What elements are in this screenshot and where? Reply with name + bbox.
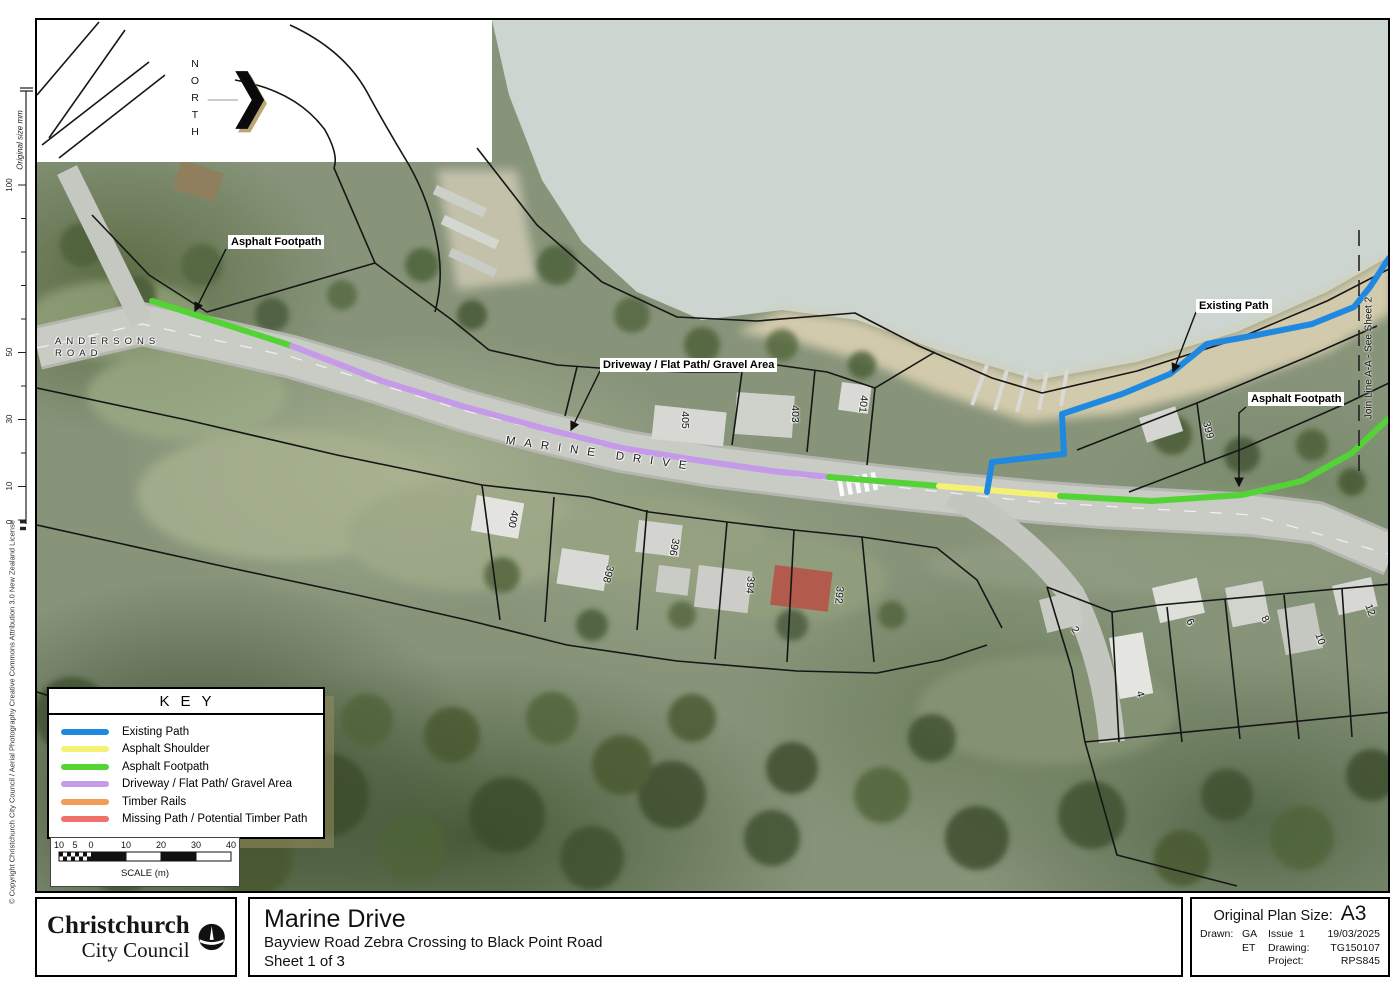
svg-text:10: 10 xyxy=(54,840,64,850)
plan-sheet: 100 50 30 10 0 Original size mm © Copyri… xyxy=(0,0,1398,989)
parcel-number: 405 xyxy=(679,411,691,429)
key-swatch xyxy=(61,816,109,822)
ruler-tick-100: 100 xyxy=(5,178,14,192)
harbour-water xyxy=(437,20,1390,422)
drawn-initials-2: ET xyxy=(1242,942,1268,956)
join-line-label: Join Line A-A - See Sheet 2 xyxy=(1364,297,1375,419)
parcel-number: 401 xyxy=(856,395,870,414)
svg-text:0: 0 xyxy=(88,840,93,850)
key-item-timber-rails: Timber Rails xyxy=(61,793,317,811)
plan-size-value: A3 xyxy=(1341,902,1367,926)
parcel-number: 394 xyxy=(743,576,756,595)
ruler-tick-50: 50 xyxy=(5,347,14,356)
scale-bar: 10 5 0 10 20 30 40 SCALE (m) xyxy=(50,837,240,887)
key-swatch xyxy=(61,781,109,787)
road-label-andersons: ANDERSONS ROAD xyxy=(55,336,160,360)
key-swatch xyxy=(61,799,109,805)
key-items: Existing Path Asphalt Shoulder Asphalt F… xyxy=(49,715,323,837)
svg-text:10: 10 xyxy=(121,840,131,850)
sheet-title-box: Marine Drive Bayview Road Zebra Crossing… xyxy=(248,897,1183,977)
drawn-label: Drawn: xyxy=(1200,928,1242,942)
svg-text:20: 20 xyxy=(156,840,166,850)
drawing-number: TG150107 xyxy=(1324,942,1380,956)
svg-text:40: 40 xyxy=(226,840,236,850)
sheet-number: Sheet 1 of 3 xyxy=(264,952,1181,971)
key-item-existing-path: Existing Path xyxy=(61,723,317,741)
scale-bar-segments xyxy=(59,852,231,861)
issue-label: Issue 1 xyxy=(1268,928,1324,942)
key-item-asphalt-shoulder: Asphalt Shoulder xyxy=(61,741,317,759)
parcel-number: 403 xyxy=(789,405,801,423)
key-item-label: Missing Path / Potential Timber Path xyxy=(122,813,307,825)
council-logo-icon xyxy=(198,913,225,961)
north-label: NORTH xyxy=(189,58,201,143)
sheet-title: Marine Drive xyxy=(264,905,1181,933)
key-item-label: Driveway / Flat Path/ Gravel Area xyxy=(122,778,292,790)
scale-caption: SCALE (m) xyxy=(121,868,169,879)
parcel-number: 392 xyxy=(832,586,845,605)
plan-info-grid: Drawn: GA Issue 1 19/03/2025 ET Drawing:… xyxy=(1200,928,1380,969)
key-item-label: Existing Path xyxy=(122,726,189,738)
plan-size-label: Original Plan Size: xyxy=(1214,908,1333,924)
issue-date: 19/03/2025 xyxy=(1324,928,1380,942)
map-key-legend: KEY Existing Path Asphalt Shoulder Aspha… xyxy=(47,687,325,839)
map-canvas: NORTH Asphalt Footpath Driveway / Flat P… xyxy=(35,18,1390,893)
drawn-initials-1: GA xyxy=(1242,928,1268,942)
key-swatch xyxy=(61,729,109,735)
callout-existing-path: Existing Path xyxy=(1196,299,1272,313)
org-name: Christchurch City Council xyxy=(47,913,190,961)
plan-size-row: Original Plan Size: A3 xyxy=(1200,902,1380,926)
copyright-text: © Copyright Christchurch City Council / … xyxy=(8,520,17,904)
key-swatch xyxy=(61,746,109,752)
callout-asphalt-footpath-right: Asphalt Footpath xyxy=(1248,392,1344,406)
key-item-driveway: Driveway / Flat Path/ Gravel Area xyxy=(61,776,317,794)
callout-asphalt-footpath-left: Asphalt Footpath xyxy=(228,235,324,249)
plan-info-box: Original Plan Size: A3 Drawn: GA Issue 1… xyxy=(1190,897,1390,977)
key-title: KEY xyxy=(49,689,323,715)
sheet-subtitle: Bayview Road Zebra Crossing to Black Poi… xyxy=(264,933,1181,952)
project-number: RPS845 xyxy=(1324,955,1380,969)
key-item-asphalt-footpath: Asphalt Footpath xyxy=(61,758,317,776)
red-roof-building xyxy=(770,565,832,612)
council-logo-box: Christchurch City Council xyxy=(35,897,237,977)
svg-text:5: 5 xyxy=(72,840,77,850)
callout-driveway: Driveway / Flat Path/ Gravel Area xyxy=(600,358,777,372)
drawing-label: Drawing: xyxy=(1268,942,1324,956)
ruler-tick-30: 30 xyxy=(5,414,14,423)
svg-text:30: 30 xyxy=(191,840,201,850)
key-item-missing-path: Missing Path / Potential Timber Path xyxy=(61,811,317,829)
scale-bar-graphic: 10 5 0 10 20 30 40 SCALE (m) xyxy=(51,838,239,886)
key-swatch xyxy=(61,764,109,770)
ruler-caption: Original size mm xyxy=(16,110,25,170)
project-label: Project: xyxy=(1268,955,1324,969)
key-item-label: Asphalt Footpath xyxy=(122,761,209,773)
north-chevron-icon xyxy=(205,48,271,152)
ruler-tick-10: 10 xyxy=(5,481,14,490)
key-item-label: Asphalt Shoulder xyxy=(122,743,210,755)
north-arrow: NORTH xyxy=(187,48,277,158)
key-item-label: Timber Rails xyxy=(122,796,186,808)
